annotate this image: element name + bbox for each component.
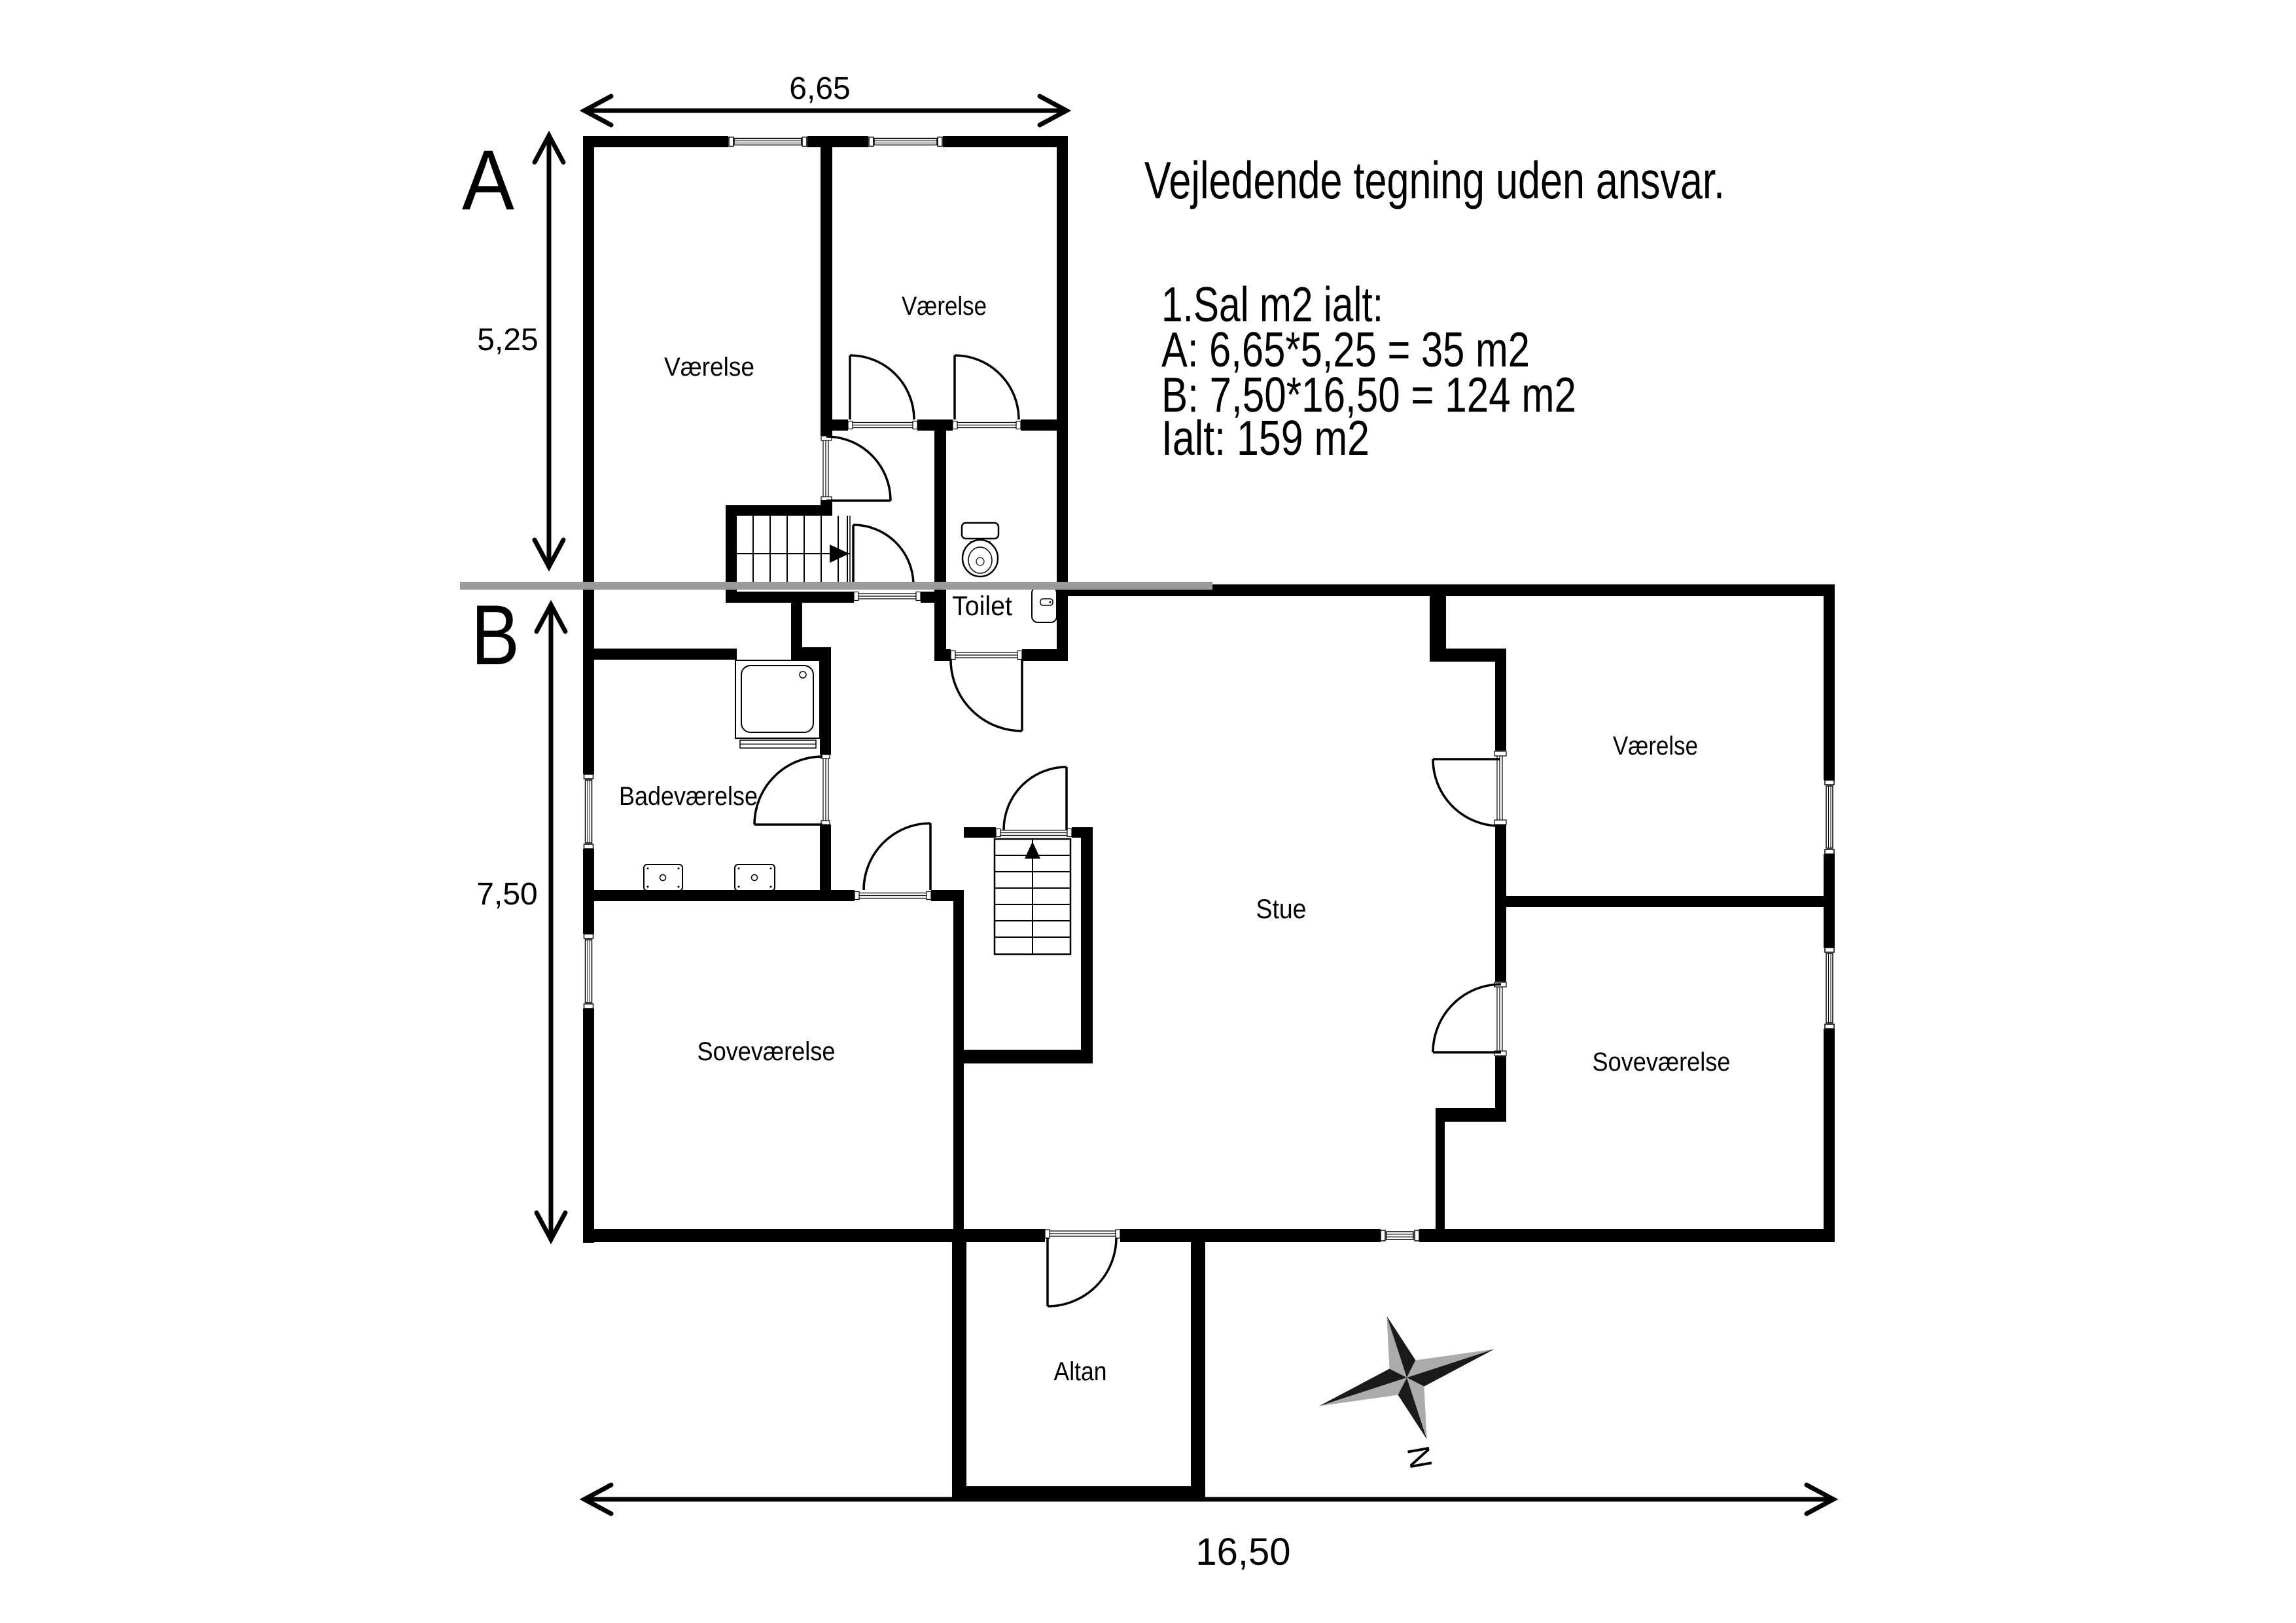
svg-text:Altan: Altan bbox=[1054, 1357, 1107, 1386]
svg-text:5,25: 5,25 bbox=[477, 323, 538, 357]
svg-text:Vejledende tegning uden ansvar: Vejledende tegning uden ansvar. bbox=[1144, 151, 1725, 209]
svg-text:6,65: 6,65 bbox=[789, 71, 850, 106]
svg-text:Toilet: Toilet bbox=[952, 590, 1012, 621]
svg-text:Badeværelse: Badeværelse bbox=[619, 782, 758, 811]
svg-text:Stue: Stue bbox=[1256, 893, 1307, 924]
svg-text:A: A bbox=[462, 132, 514, 228]
svg-text:16,50: 16,50 bbox=[1195, 1531, 1290, 1573]
svg-text:Værelse: Værelse bbox=[1613, 732, 1698, 760]
svg-text:B: B bbox=[471, 587, 520, 683]
svg-text:Værelse: Værelse bbox=[902, 292, 987, 321]
svg-text:7,50: 7,50 bbox=[476, 877, 537, 912]
svg-text:Soveværelse: Soveværelse bbox=[1593, 1048, 1731, 1077]
svg-text:Værelse: Værelse bbox=[664, 353, 754, 382]
svg-text:Ialt: 159 m2: Ialt: 159 m2 bbox=[1161, 410, 1369, 465]
svg-text:Soveværelse: Soveværelse bbox=[698, 1037, 836, 1066]
